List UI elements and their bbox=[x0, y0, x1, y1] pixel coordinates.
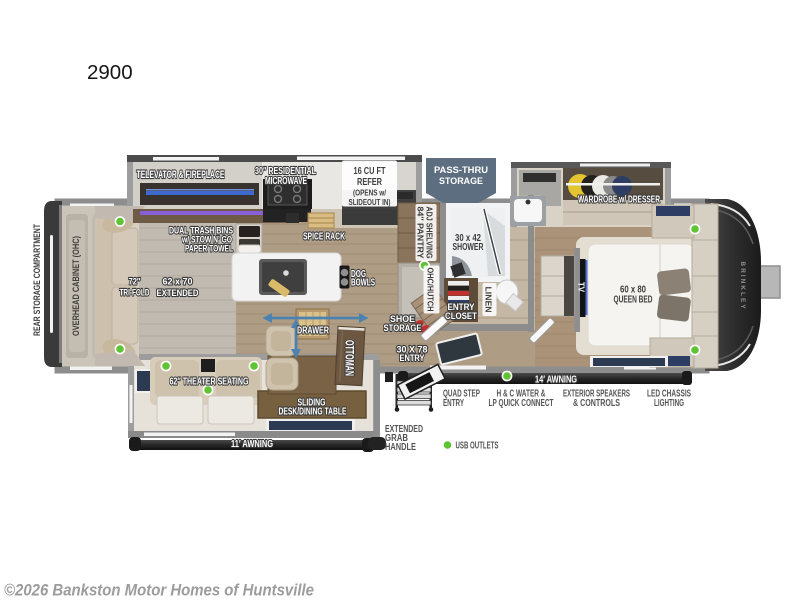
svg-text:OTTOMAN: OTTOMAN bbox=[343, 340, 355, 376]
svg-text:PASS-THRU: PASS-THRU bbox=[434, 165, 488, 176]
svg-text:TELEVATOR & FIREPLACE: TELEVATOR & FIREPLACE bbox=[137, 169, 225, 181]
svg-text:SPICE RACK: SPICE RACK bbox=[303, 232, 346, 243]
svg-text:STORAGE: STORAGE bbox=[384, 323, 422, 334]
svg-text:TV: TV bbox=[577, 282, 586, 293]
svg-text:BRINKLEY: BRINKLEY bbox=[739, 261, 746, 310]
svg-text:OVERHEAD CABINET (OHC): OVERHEAD CABINET (OHC) bbox=[71, 236, 81, 336]
svg-text:ENTRY: ENTRY bbox=[443, 398, 464, 409]
svg-text:CLOSET: CLOSET bbox=[445, 311, 477, 322]
svg-text:16 CU FT: 16 CU FT bbox=[354, 166, 386, 177]
svg-text:62 x 70: 62 x 70 bbox=[163, 277, 193, 288]
svg-text:62″ THEATER SEATING: 62″ THEATER SEATING bbox=[170, 376, 249, 388]
svg-text:EXTENDED: EXTENDED bbox=[157, 288, 199, 299]
svg-text:14′ AWNING: 14′ AWNING bbox=[535, 375, 577, 386]
svg-text:2900: 2900 bbox=[87, 61, 133, 84]
svg-text:SLIDEOUT IN): SLIDEOUT IN) bbox=[349, 197, 391, 207]
svg-text:WARDROBE w/ DRESSER: WARDROBE w/ DRESSER bbox=[578, 195, 661, 206]
svg-text:HANDLE: HANDLE bbox=[385, 442, 416, 453]
svg-text:MICROWAVE: MICROWAVE bbox=[265, 175, 307, 187]
svg-text:LP QUICK CONNECT: LP QUICK CONNECT bbox=[489, 398, 554, 409]
svg-text:SHOWER: SHOWER bbox=[453, 242, 485, 253]
svg-text:72″: 72″ bbox=[129, 277, 141, 288]
svg-text:LINEN: LINEN bbox=[484, 287, 494, 313]
svg-text:PAPER TOWEL: PAPER TOWEL bbox=[185, 244, 233, 255]
svg-text:LIGHTING: LIGHTING bbox=[654, 398, 684, 409]
svg-text:DESK/DINING TABLE: DESK/DINING TABLE bbox=[279, 407, 347, 418]
svg-text:(OPENS w/: (OPENS w/ bbox=[353, 188, 386, 198]
svg-text:REAR STORAGE COMPARTMENT: REAR STORAGE COMPARTMENT bbox=[32, 224, 42, 336]
svg-text:& CONTROLS: & CONTROLS bbox=[573, 398, 620, 409]
svg-text:REFER: REFER bbox=[357, 177, 383, 188]
svg-text:QUEEN BED: QUEEN BED bbox=[614, 295, 653, 306]
svg-text:84″ PANTRY: 84″ PANTRY bbox=[416, 207, 426, 259]
svg-text:11′ AWNING: 11′ AWNING bbox=[231, 439, 273, 450]
svg-text:TRI-FOLD: TRI-FOLD bbox=[120, 288, 150, 299]
svg-text:USB OUTLETS: USB OUTLETS bbox=[456, 441, 499, 452]
svg-text:OHC/HUTCH: OHC/HUTCH bbox=[426, 268, 436, 312]
svg-text:©2026 Bankston Motor Homes of: ©2026 Bankston Motor Homes of Huntsville bbox=[4, 582, 314, 600]
svg-text:DRAWER: DRAWER bbox=[297, 326, 330, 337]
svg-text:BOWLS: BOWLS bbox=[351, 278, 375, 289]
svg-text:ADJ SHELVING: ADJ SHELVING bbox=[425, 207, 435, 259]
svg-text:ENTRY: ENTRY bbox=[400, 353, 426, 364]
svg-text:STORAGE: STORAGE bbox=[439, 176, 483, 187]
